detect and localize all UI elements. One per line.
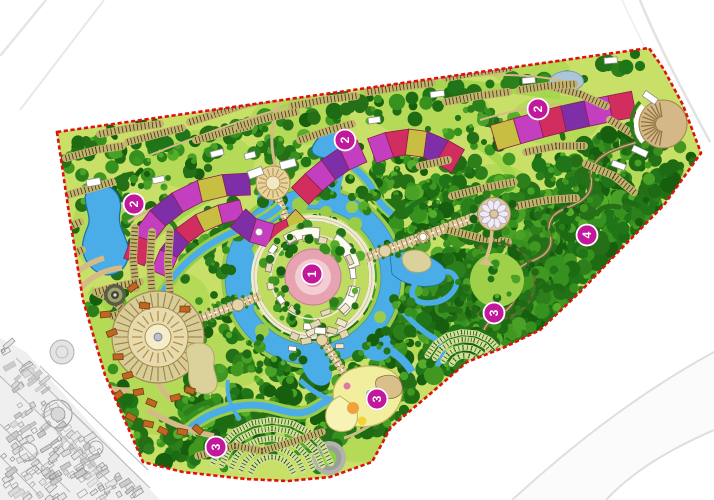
svg-text:2: 2 (338, 136, 352, 143)
svg-text:2: 2 (127, 200, 141, 207)
svg-text:4: 4 (580, 231, 594, 238)
svg-text:2: 2 (531, 105, 545, 112)
svg-text:3: 3 (487, 309, 501, 316)
svg-text:1: 1 (305, 270, 319, 277)
svg-text:3: 3 (370, 395, 384, 402)
svg-text:3: 3 (209, 443, 223, 450)
